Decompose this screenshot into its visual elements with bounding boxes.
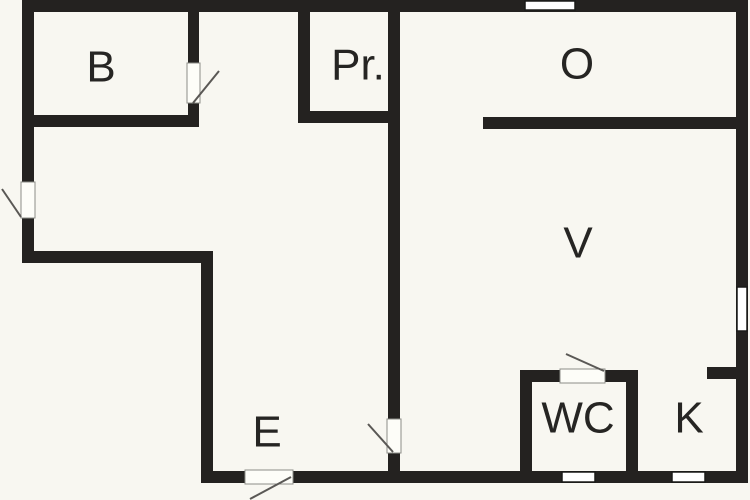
entry-door-opening: [245, 470, 293, 484]
wc-left-wall: [520, 370, 532, 477]
bedroom-right-wall-lower: [188, 102, 199, 127]
window-bottom-wall-wc: [562, 472, 595, 482]
outer-right-wall: [736, 0, 748, 483]
wc-door-opening: [560, 369, 605, 383]
bedroom-right-wall-upper: [188, 0, 199, 64]
window-bottom-wall-k: [672, 472, 705, 482]
notch-vertical-wall: [201, 251, 213, 483]
window-top-wall: [525, 1, 575, 10]
window-right-wall: [737, 287, 747, 331]
notch-horizontal-wall: [22, 251, 213, 263]
room-label-kitchen: K: [674, 394, 703, 443]
main-vertical-wall-lower: [388, 452, 400, 483]
room-label-bedroom: B: [86, 43, 115, 92]
wc-top-wall-left: [520, 370, 562, 382]
kitchen-stub-wall: [707, 367, 737, 379]
room-label-closet: Pr.: [331, 41, 385, 90]
bedroom-bottom-wall: [28, 115, 199, 127]
closet-bottom-wall: [298, 111, 400, 123]
balcony-door-opening: [21, 182, 35, 218]
room-label-room-v: V: [563, 219, 593, 268]
floor-plan-svg: BPr.OVEWCK: [0, 0, 750, 500]
outer-top-wall: [22, 0, 748, 12]
room-label-room-o: O: [560, 40, 594, 89]
room-o-bottom-wall: [483, 117, 748, 129]
floor-plan-canvas: BPr.OVEWCK: [0, 0, 750, 500]
closet-left-wall: [298, 6, 310, 123]
main-vertical-wall-upper: [388, 0, 400, 420]
room-label-wc: WC: [541, 394, 614, 443]
room-label-entry: E: [252, 408, 281, 457]
outer-left-wall: [22, 0, 34, 263]
wc-right-wall: [626, 370, 638, 477]
